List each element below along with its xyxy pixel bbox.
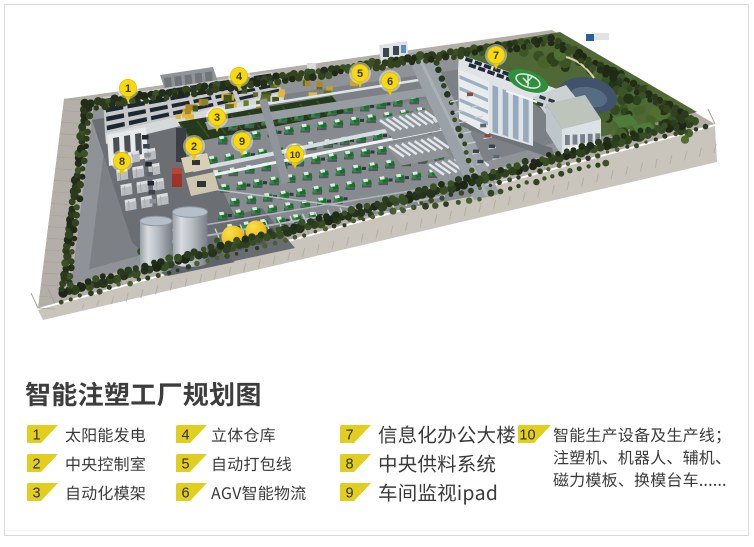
svg-text:4: 4 — [236, 71, 243, 83]
svg-text:1: 1 — [125, 83, 131, 95]
svg-text:5: 5 — [181, 457, 189, 473]
svg-text:4: 4 — [181, 428, 189, 444]
svg-text:2: 2 — [191, 141, 197, 153]
svg-text:9: 9 — [345, 486, 353, 502]
svg-text:2: 2 — [32, 457, 40, 473]
svg-text:3: 3 — [32, 486, 40, 502]
svg-text:8: 8 — [119, 156, 125, 168]
svg-text:3: 3 — [214, 112, 220, 124]
svg-text:7: 7 — [493, 50, 499, 62]
svg-text:6: 6 — [181, 486, 189, 502]
svg-text:6: 6 — [387, 76, 393, 88]
svg-text:10: 10 — [290, 150, 301, 161]
svg-text:7: 7 — [345, 428, 353, 444]
svg-text:8: 8 — [345, 457, 353, 473]
svg-text:5: 5 — [357, 68, 363, 80]
svg-text:10: 10 — [519, 428, 535, 444]
svg-text:9: 9 — [239, 136, 245, 148]
svg-text:1: 1 — [32, 428, 40, 444]
